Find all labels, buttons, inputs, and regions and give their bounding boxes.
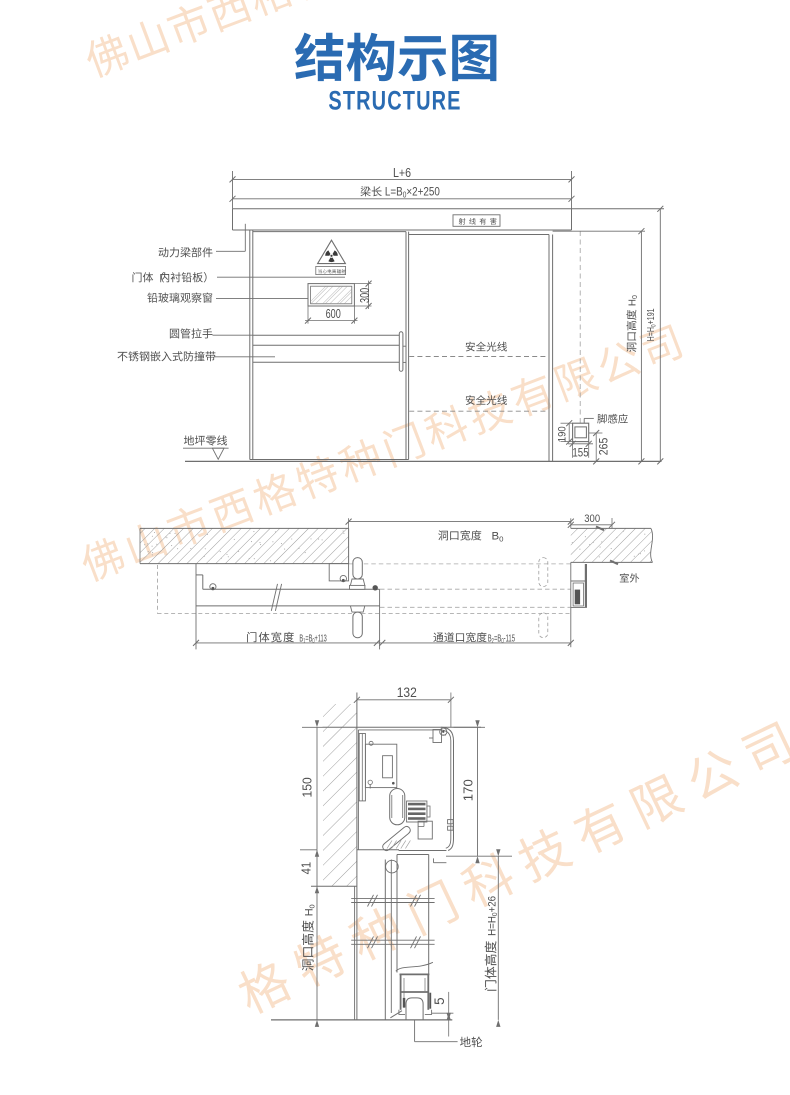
svg-text:STRUCTURE: STRUCTURE [328,86,461,117]
svg-text:L=B0×2+250: L=B0×2+250 [385,185,440,200]
svg-text:155: 155 [572,448,588,460]
svg-text:H0: H0 [628,295,640,306]
svg-text:L+6: L+6 [393,165,411,180]
svg-text:B1=B0+113: B1=B0+113 [299,633,327,645]
svg-text:170: 170 [461,779,476,801]
svg-text:265: 265 [597,437,611,455]
svg-text:B2=B0-115: B2=B0-115 [488,633,516,645]
svg-text:150: 150 [300,777,315,797]
svg-text:H=H0+191: H=H0+191 [646,308,658,341]
svg-text:600: 600 [326,307,341,321]
svg-text:300: 300 [584,513,600,525]
svg-text:300: 300 [358,288,372,303]
svg-text:5: 5 [432,997,447,1005]
svg-text:H0: H0 [304,904,317,916]
svg-text:H=H0+26: H=H0+26 [486,896,499,936]
svg-text:B0: B0 [492,531,504,544]
svg-text:41: 41 [299,862,313,875]
svg-text:190: 190 [557,426,569,442]
svg-text:132: 132 [397,685,417,700]
